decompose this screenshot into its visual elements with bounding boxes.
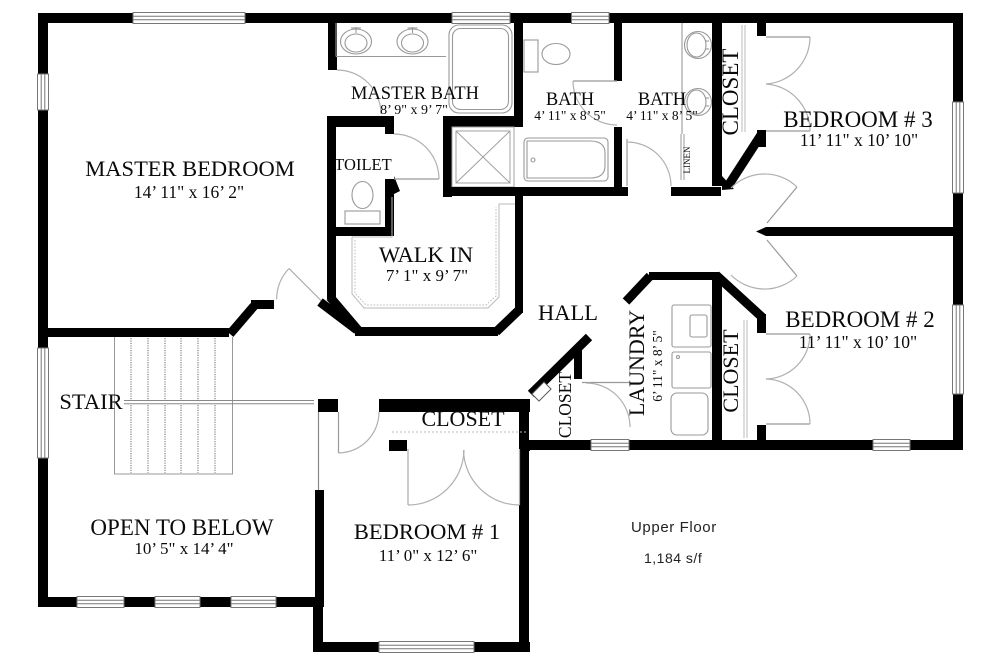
- svg-text:BEDROOM # 1: BEDROOM # 1: [354, 519, 500, 544]
- svg-text:7’ 1" x 9’ 7": 7’ 1" x 9’ 7": [386, 266, 468, 285]
- svg-text:CLOSET: CLOSET: [421, 406, 505, 431]
- svg-text:4’ 11" x 8’ 5": 4’ 11" x 8’ 5": [626, 108, 698, 123]
- svg-text:CLOSET: CLOSET: [718, 329, 743, 413]
- svg-text:HALL: HALL: [538, 300, 598, 325]
- svg-text:TOILET: TOILET: [334, 155, 391, 174]
- svg-text:4’ 11" x 8’ 5": 4’ 11" x 8’ 5": [534, 108, 606, 123]
- svg-text:CLOSET: CLOSET: [718, 49, 743, 136]
- svg-text:11’ 0" x 12’ 6": 11’ 0" x 12’ 6": [379, 546, 478, 565]
- svg-text:8’ 9" x 9’ 7": 8’ 9" x 9’ 7": [380, 103, 448, 118]
- svg-text:Upper Floor: Upper Floor: [631, 519, 717, 536]
- svg-text:BATH: BATH: [638, 90, 686, 110]
- svg-text:LINEN: LINEN: [682, 146, 692, 173]
- svg-text:11’ 11" x 10’ 10": 11’ 11" x 10’ 10": [799, 332, 917, 352]
- svg-text:BATH: BATH: [546, 90, 594, 110]
- svg-text:STAIR: STAIR: [59, 389, 122, 414]
- svg-text:1,184 s/f: 1,184 s/f: [644, 550, 702, 566]
- svg-text:11’ 11" x 10’ 10": 11’ 11" x 10’ 10": [800, 130, 918, 150]
- svg-text:CLOSET: CLOSET: [555, 372, 575, 438]
- svg-text:OPEN TO BELOW: OPEN TO BELOW: [90, 515, 273, 540]
- svg-text:10’ 5" x 14’ 4": 10’ 5" x 14’ 4": [134, 539, 233, 558]
- svg-text:WALK IN: WALK IN: [379, 242, 473, 267]
- svg-text:BEDROOM # 3: BEDROOM # 3: [783, 107, 933, 132]
- svg-text:MASTER BEDROOM: MASTER BEDROOM: [85, 156, 294, 181]
- svg-text:BEDROOM # 2: BEDROOM # 2: [785, 307, 935, 332]
- svg-text:MASTER BATH: MASTER BATH: [351, 84, 479, 104]
- svg-text:14’ 11" x 16’ 2": 14’ 11" x 16’ 2": [134, 182, 244, 202]
- svg-text:LAUNDRY: LAUNDRY: [624, 310, 649, 416]
- svg-text:6’ 11" x 8’ 5": 6’ 11" x 8’ 5": [650, 330, 665, 402]
